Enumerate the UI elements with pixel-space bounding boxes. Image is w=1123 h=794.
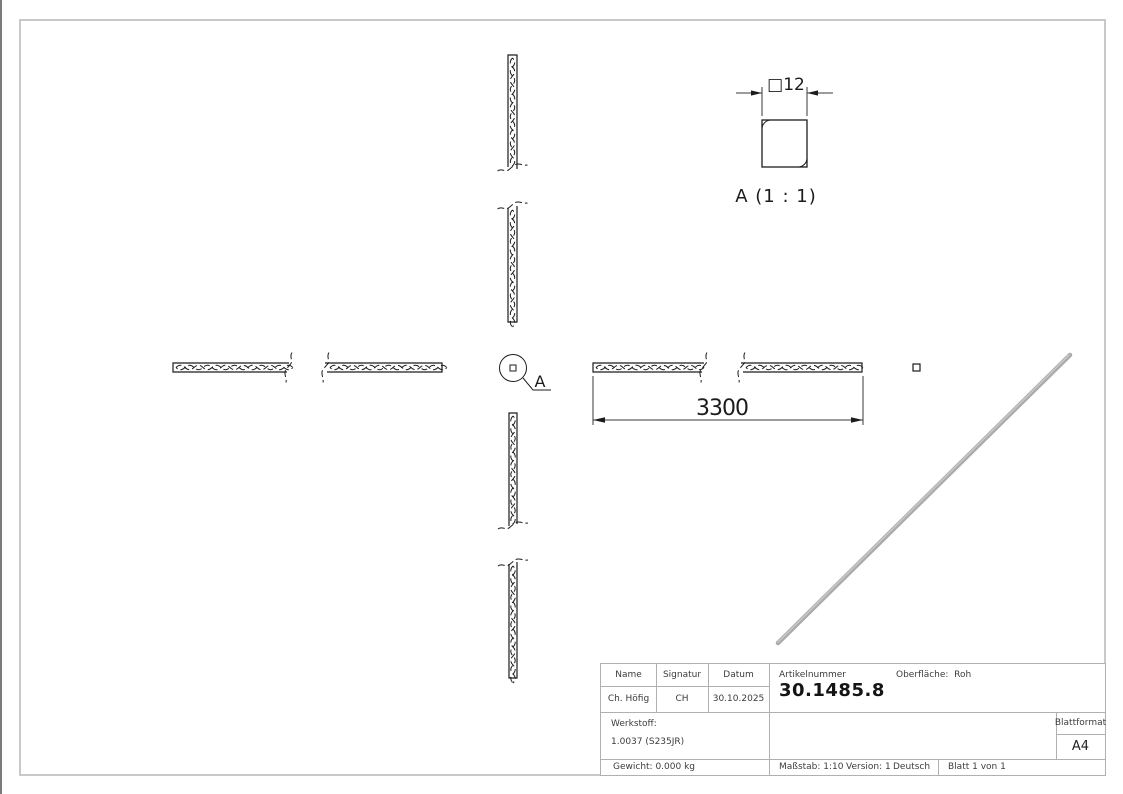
label-oberflaeche: Oberfläche: Roh <box>896 671 971 680</box>
arrowhead-left <box>751 90 762 95</box>
break-line <box>498 559 528 566</box>
detail-view-A: □12 A (1 : 1) <box>735 75 833 207</box>
view-left-horizontal-bar <box>173 353 447 383</box>
grid-line <box>601 759 1105 760</box>
label-artikelnummer: Artikelnummer <box>779 671 846 680</box>
value-datum: 30.10.2025 <box>708 686 769 712</box>
view-right-horizontal-bar <box>593 353 863 383</box>
break-line <box>285 353 292 383</box>
view-top-vertical-bar <box>498 55 528 327</box>
label-werkstoff: Werkstoff: <box>611 720 657 729</box>
arrowhead-right <box>807 90 818 95</box>
texture-wave <box>746 365 863 369</box>
footer-blatt: Blatt 1 von 1 <box>948 763 1006 772</box>
break-line <box>498 202 528 209</box>
isometric-bar-highlight <box>778 355 1069 642</box>
view-bottom-vertical-bar <box>498 413 528 683</box>
drawing-sheet: { "drawing": { "detail_dimension": "□12"… <box>0 0 1123 794</box>
value-blattformat: A4 <box>1056 734 1105 759</box>
footer-version: Version: 1 <box>846 763 891 772</box>
header-datum: Datum <box>708 664 769 686</box>
label-blattformat: Blattformat <box>1056 712 1105 734</box>
texture-wave <box>176 365 293 369</box>
length-dimension: 3300 <box>593 376 863 425</box>
view-end-square <box>913 364 920 371</box>
grid-line <box>601 712 1105 713</box>
grid-line <box>938 759 939 775</box>
callout-letter: A <box>535 372 546 391</box>
break-line <box>322 353 329 383</box>
texture-wave <box>330 365 447 369</box>
header-signatur: Signatur <box>656 664 708 686</box>
detail-square-profile <box>762 120 807 167</box>
detail-view-label: A (1 : 1) <box>735 186 817 207</box>
bar-views <box>173 55 920 683</box>
callout-circle <box>500 355 527 382</box>
value-signatur: CH <box>656 686 708 712</box>
bar-outline <box>593 363 704 372</box>
detail-dimension-text: □12 <box>767 75 805 95</box>
bar-cross-section-square <box>510 365 516 371</box>
break-line <box>498 522 528 529</box>
texture-wave <box>510 210 514 327</box>
value-artikelnummer: 30.1485.8 <box>779 682 885 700</box>
title-block: Name Signatur Datum Ch. Höfig CH 30.10.2… <box>600 663 1106 776</box>
bar-outline <box>173 363 289 372</box>
value-werkstoff: 1.0037 (S235JR) <box>611 738 684 747</box>
isometric-bar-view <box>778 355 1070 643</box>
corner-fillet-arcs <box>762 120 807 167</box>
footer-gewicht: Gewicht: 0.000 kg <box>613 763 695 772</box>
bar-outline <box>741 363 862 372</box>
texture-wave <box>511 566 515 683</box>
footer-massstab: Maßstab: 1:10 <box>779 763 844 772</box>
break-line <box>738 353 745 383</box>
value-name: Ch. Höfig <box>601 686 656 712</box>
arrowhead-right <box>851 417 863 422</box>
break-line <box>498 164 528 171</box>
dimension-text: 3300 <box>696 396 748 421</box>
arrowhead-left <box>593 417 605 422</box>
footer-sprache: Deutsch <box>893 763 930 772</box>
header-name: Name <box>601 664 656 686</box>
